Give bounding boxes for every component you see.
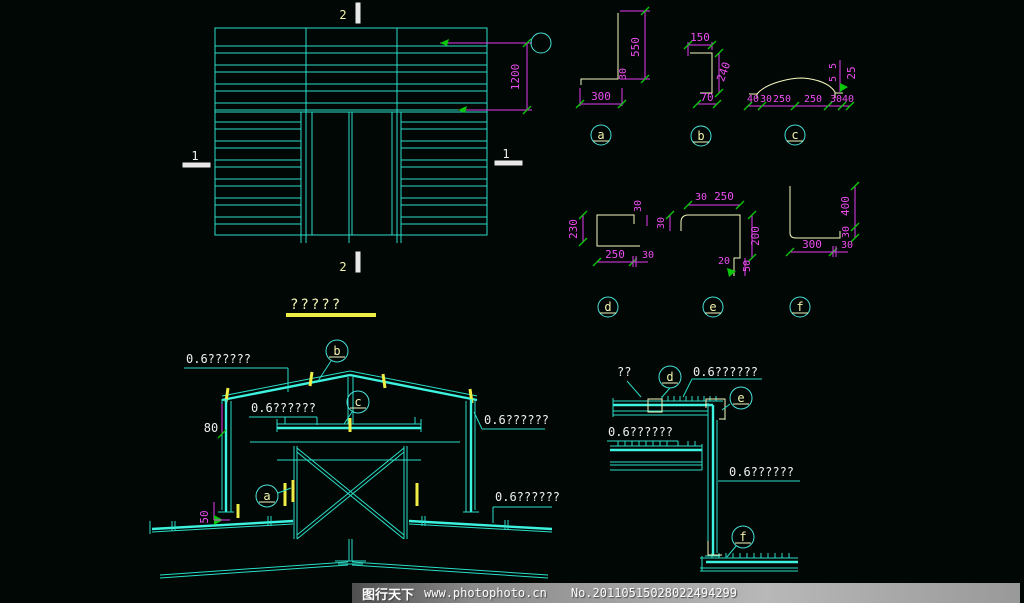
dim-a-550: 550 [629,37,642,57]
detail-d: 230 30 250 30 d [567,200,654,317]
dim-f-400: 400 [839,196,852,216]
dim-c-30-left: 30 [760,94,772,105]
callout-letter-b: b [697,129,704,143]
watermark-url: www.photophoto.cn [424,586,547,600]
callout-letter-a: a [597,128,604,142]
section-drawing: ????? [150,297,560,578]
section-label-right: 0.6?????? [484,413,549,427]
section-title-underline [286,313,376,317]
detail-a: 550 30 300 a [576,7,650,145]
dim-a-300: 300 [591,90,611,103]
dim-e-30-top: 30 [695,192,707,203]
wall-base-trim [708,541,722,555]
dim-b-70: 70 [700,91,713,104]
elevation-callout-bubble [531,33,551,53]
section-mark-tick-top [356,3,360,23]
section-mark-tick-left [183,163,210,167]
dim-d-230: 230 [567,219,580,239]
dim-c-5a: 5 [828,63,839,69]
dim-e-200: 200 [749,226,762,246]
eave-trim-profile [706,399,725,419]
eave-detail-drawing: d ?? 0.6?????? e 0.6?????? 0.6 [607,365,800,571]
section-callout-letter-b: b [333,344,340,358]
dim-c-25: 25 [845,66,858,79]
detail-c: 40 30 250 250 30 40 5 5 25 c [744,60,858,145]
watermark-bar: 图行天下 www.photophoto.cn No.20110515028022… [352,583,1020,603]
section-label-lower-right: 0.6?????? [495,490,560,504]
dim-c-30-right: 30 [830,94,842,105]
cad-drawing-canvas: 2 2 1 1 1200 550 30 [0,0,1024,603]
section-mark-2-bottom: 2 [339,260,346,274]
detail-f: 400 30 300 30 f [786,182,859,317]
elevation-drawing: 2 2 1 1 1200 [183,3,551,274]
section-mark-1-right: 1 [502,147,509,161]
eave-label-top: 0.6?????? [693,365,758,379]
callout-letter-f: f [796,300,803,314]
section-label-roof-left: 0.6?????? [186,352,251,366]
watermark-brand: 图行天下 [362,584,414,603]
section-callout-letter-a: a [263,489,270,503]
dim-e-30-left: 30 [656,217,667,229]
cad-drawing-viewport: 2 2 1 1 1200 550 30 [0,0,1024,603]
dim-f-300: 300 [802,238,822,251]
eave-callout-letter-f: f [739,530,746,544]
section-mark-tick-bottom [356,252,360,272]
section-dim-50: 50 [198,510,211,523]
eave-label-left: 0.6?????? [608,425,673,439]
detail-b: 150 240 70 b [684,31,733,146]
section-title: ????? [290,297,342,313]
dim-f-30-bot: 30 [841,240,853,251]
callout-letter-c: c [791,128,798,142]
dim-e-250: 250 [714,190,734,203]
section-mark-2-top: 2 [339,8,346,22]
detail-e: 30 250 30 200 50 20 e [656,190,762,317]
dim-e-20: 20 [718,256,730,267]
elevation-left-panel-hatch [215,122,301,224]
watermark-serial: No.20110515028022494299 [571,586,737,600]
dim-d-30-top: 30 [633,200,644,212]
dim-c-250-left: 250 [773,94,791,105]
dim-c-250-right: 250 [804,94,822,105]
bottom-panel-corrugation-ticks [712,553,789,558]
dim-d-30-bot: 30 [642,250,654,261]
dim-f-30-v: 30 [841,226,852,238]
dim-b-240: 240 [714,60,733,83]
section-mark-tick-right [495,161,522,165]
eave-callout-letter-d: d [666,370,673,384]
section-dim-80: 80 [204,421,218,435]
left-panel-corrugation-ticks [618,441,695,446]
callout-letter-e: e [709,300,716,314]
elevation-door-opening [301,28,401,243]
eave-label-right: 0.6?????? [729,465,794,479]
dim-e-50: 50 [742,260,753,272]
dim-c-5b: 5 [828,76,839,82]
dim-d-250: 250 [605,248,625,261]
dim-b-150: 150 [690,31,710,44]
elevation-right-panel-hatch [401,122,487,224]
section-label-inner: 0.6?????? [251,401,316,415]
dim-a-30: 30 [618,68,629,80]
dim-c-40-left: 40 [747,94,759,105]
eave-callout-letter-e: e [737,391,744,405]
dim-1200: 1200 [509,64,522,91]
section-callout-letter-c: c [354,395,361,409]
eave-label-unknown: ?? [617,365,631,379]
dim-c-40-right: 40 [842,94,854,105]
callout-letter-d: d [604,300,611,314]
section-mark-1-left: 1 [191,149,198,163]
